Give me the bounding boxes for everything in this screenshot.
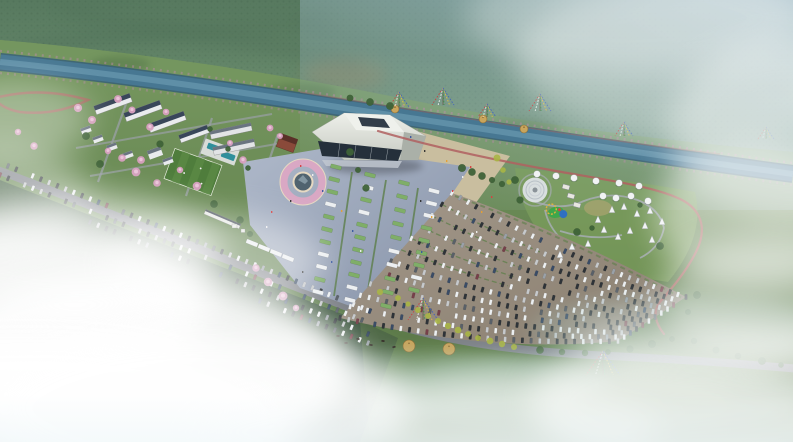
dome-tent bbox=[616, 180, 623, 187]
blossom-tree-highlight bbox=[279, 134, 282, 137]
pedestrian bbox=[431, 216, 432, 218]
parked-car bbox=[495, 336, 498, 342]
pedestrian bbox=[312, 174, 313, 176]
straw-hut bbox=[403, 340, 415, 352]
blossom-tree-highlight bbox=[241, 158, 244, 161]
parked-car bbox=[530, 338, 533, 343]
green-tree bbox=[499, 181, 505, 187]
parked-car bbox=[524, 323, 527, 329]
pedestrian bbox=[331, 261, 332, 263]
dome-tent bbox=[613, 195, 620, 202]
green-tree bbox=[468, 168, 475, 175]
green-tree bbox=[346, 148, 354, 156]
pedestrian bbox=[446, 160, 447, 162]
parked-car bbox=[425, 329, 428, 335]
green-tree bbox=[210, 200, 217, 207]
straw-hut-tip bbox=[394, 106, 396, 108]
green-tree bbox=[511, 176, 519, 184]
green-tree bbox=[366, 98, 373, 105]
pedestrian bbox=[271, 211, 272, 213]
yellow-bush bbox=[377, 289, 383, 295]
green-tree bbox=[225, 146, 230, 151]
yellow-bush bbox=[487, 338, 494, 345]
pedestrian bbox=[420, 200, 421, 202]
parked-car bbox=[507, 321, 510, 327]
yellow-bush bbox=[415, 307, 421, 313]
straw-hut-tip bbox=[448, 346, 450, 348]
parked-car bbox=[468, 325, 471, 331]
pedestrian bbox=[421, 251, 422, 253]
green-tree bbox=[362, 184, 369, 191]
parked-car bbox=[512, 337, 515, 343]
blossom-tree-highlight bbox=[116, 97, 120, 101]
pedestrian bbox=[424, 150, 425, 152]
cattle bbox=[381, 340, 384, 342]
green-tree bbox=[355, 167, 361, 173]
green-tree bbox=[157, 141, 164, 148]
green-tree bbox=[478, 172, 485, 179]
parked-car bbox=[498, 320, 501, 326]
yellow-bush bbox=[506, 179, 511, 184]
green-tree bbox=[637, 202, 642, 207]
blossom-tree-highlight bbox=[269, 126, 272, 129]
blossom-tree-highlight bbox=[165, 110, 168, 113]
yellow-bush bbox=[494, 155, 501, 162]
blossom-tree-highlight bbox=[130, 108, 133, 111]
green-tree bbox=[347, 95, 354, 102]
bottom-haze-veil bbox=[0, 395, 793, 442]
blossom-tree-highlight bbox=[155, 181, 158, 184]
green-tree bbox=[573, 228, 580, 235]
dome-tent bbox=[571, 175, 578, 182]
blossom-tree-highlight bbox=[139, 158, 142, 161]
parked-car bbox=[477, 326, 480, 332]
yellow-bush bbox=[395, 295, 401, 301]
dome-tent bbox=[600, 193, 607, 200]
parked-car bbox=[460, 333, 463, 339]
straw-hut-tip bbox=[408, 343, 410, 345]
pedestrian bbox=[462, 176, 463, 178]
scene-canvas bbox=[0, 0, 793, 442]
green-tree bbox=[589, 225, 594, 230]
pedestrian bbox=[476, 231, 477, 233]
straw-hut-tip bbox=[523, 126, 525, 128]
dome-tent bbox=[553, 173, 560, 180]
yellow-bush bbox=[455, 327, 462, 334]
flower-emblem bbox=[281, 160, 326, 205]
parked-car bbox=[417, 328, 420, 334]
pedestrian bbox=[360, 250, 361, 252]
aerial-rendering bbox=[0, 0, 793, 442]
mandala-center bbox=[533, 188, 538, 193]
blossom-tree-highlight bbox=[120, 156, 123, 159]
dome-tent bbox=[593, 178, 600, 185]
pedestrian bbox=[300, 165, 301, 167]
cattle bbox=[344, 342, 347, 344]
blossom-tree-highlight bbox=[179, 168, 182, 171]
parked-car bbox=[504, 337, 507, 343]
yellow-bush bbox=[500, 167, 506, 173]
pedestrian bbox=[290, 200, 291, 202]
dome-tent bbox=[645, 198, 652, 205]
pedestrian bbox=[452, 190, 453, 192]
blossom-tree-highlight bbox=[107, 149, 110, 152]
parked-car bbox=[443, 331, 446, 337]
yellow-bush bbox=[475, 335, 481, 341]
cattle bbox=[369, 344, 372, 346]
pedestrian bbox=[341, 210, 342, 212]
yellow-bush bbox=[425, 313, 431, 319]
yellow-bush bbox=[511, 344, 517, 350]
green-tree bbox=[96, 160, 104, 168]
yellow-bush bbox=[499, 341, 505, 347]
parked-car bbox=[503, 329, 506, 335]
dome-tent bbox=[628, 193, 635, 200]
pedestrian bbox=[481, 211, 482, 213]
yellow-bush bbox=[465, 331, 471, 337]
pedestrian bbox=[470, 166, 471, 168]
pedestrian bbox=[322, 190, 323, 192]
yellow-bush bbox=[435, 318, 441, 324]
green-tree bbox=[207, 126, 212, 131]
mandala-plaza bbox=[523, 178, 548, 203]
green-tree bbox=[458, 164, 466, 172]
cloud bbox=[105, 214, 325, 310]
green-tree bbox=[536, 346, 543, 353]
straw-hut bbox=[520, 125, 528, 133]
blossom-tree-highlight bbox=[134, 170, 138, 174]
green-tree bbox=[386, 102, 394, 110]
dome-tent bbox=[636, 183, 643, 190]
parked-car bbox=[511, 330, 514, 336]
parked-car bbox=[434, 330, 437, 336]
pedestrian bbox=[352, 230, 353, 232]
green-tree bbox=[517, 197, 524, 204]
yellow-bush bbox=[405, 301, 410, 306]
blossom-tree-highlight bbox=[148, 125, 151, 128]
parked-car bbox=[521, 338, 524, 344]
pedestrian bbox=[406, 266, 407, 268]
dome-tent bbox=[534, 171, 541, 178]
parked-car bbox=[486, 327, 489, 333]
sand-patch bbox=[584, 200, 612, 216]
blossom-tree-highlight bbox=[195, 184, 199, 188]
green-tree bbox=[245, 165, 250, 170]
pedestrian bbox=[410, 136, 411, 138]
parked-car bbox=[451, 332, 454, 338]
yellow-bush bbox=[445, 323, 451, 329]
green-tree bbox=[489, 177, 495, 183]
blossom-tree-highlight bbox=[229, 141, 232, 144]
pedestrian bbox=[491, 196, 492, 198]
parked-car bbox=[515, 322, 518, 328]
parked-car bbox=[494, 328, 497, 334]
